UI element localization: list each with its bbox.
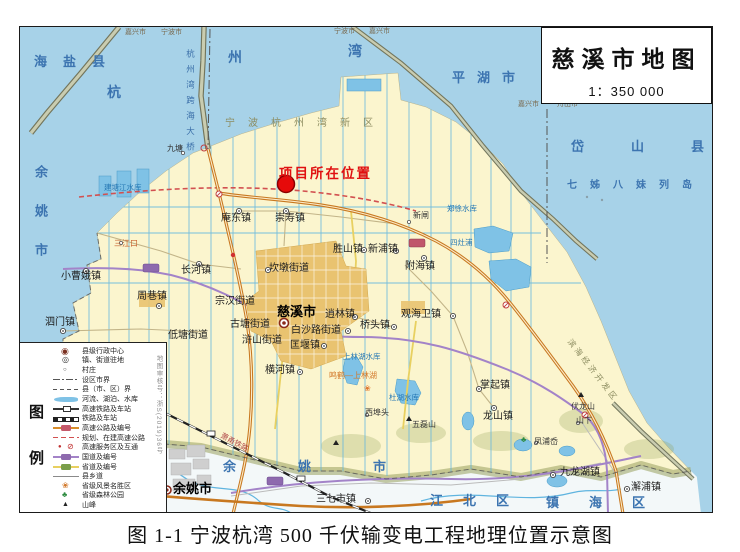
map-label: 岱山县 (571, 140, 713, 153)
map-label: 鸣鹤—上林湖 (329, 372, 377, 380)
legend-row: 镇、街道驻地 (52, 356, 144, 366)
legend-row: 省级风景名胜区 (52, 481, 144, 491)
legend-label: 国道及编号 (82, 452, 117, 462)
map-label: 嘉兴市 (125, 29, 146, 36)
map-label: 余姚市 (34, 165, 47, 282)
map-label: 匡堰镇 (290, 341, 320, 351)
expwy-legend-icon (52, 423, 80, 433)
map-label: 小曹娥镇 (61, 272, 101, 282)
map-label: 澥浦镇 (631, 483, 661, 493)
map-label: 江北区 (430, 494, 529, 507)
legend-label: 高速服务区及互通 (82, 442, 138, 452)
map-label: 三七市镇 (316, 495, 356, 505)
map-label: 嘉兴市 (518, 101, 539, 108)
map-label: 浒山街道 (242, 336, 282, 346)
town-legend-icon (52, 355, 80, 365)
map-label: 宁波市 (161, 29, 182, 36)
legend-label: 省级风景名胜区 (82, 481, 131, 491)
map-label: 杭 (107, 85, 121, 99)
legend-label: 省道及编号 (82, 462, 117, 472)
map-label: 西埠头 (365, 409, 389, 417)
river-legend-icon (52, 394, 80, 404)
map-label: 宁波市 (334, 28, 355, 35)
map-label: 湾 (348, 44, 362, 58)
map-label: 建塘江水库 (104, 184, 142, 192)
map-label: 七姊八妹列岛 (567, 181, 705, 191)
map-label: 山下 (576, 417, 592, 425)
legend-row: 高速公路及编号 (52, 423, 144, 433)
legend-row: 山峰 (52, 500, 144, 510)
legend-items: 县级行政中心镇、街道驻地村庄设区市界县（市、区）界河流、湖泊、水库高速铁路及车站… (52, 346, 144, 510)
map-title: 慈溪市地图 (542, 40, 711, 74)
map-label: 逍林镇 (325, 310, 355, 320)
map-label: 海盐县 (34, 55, 121, 68)
legend-label: 镇、街道驻地 (82, 355, 124, 365)
legend-row: 高速服务区及互通 (52, 442, 144, 452)
legend-row: 省级森林公园 (52, 491, 144, 501)
planned-legend-icon (52, 433, 80, 443)
map-label: 宗汉街道 (215, 297, 255, 307)
map-title-box: 慈溪市地图 1：350 000 (541, 27, 712, 104)
map-label: 古塘街道 (230, 320, 270, 330)
map-label: 杜湖水库 (389, 394, 419, 402)
scenic-legend-icon (52, 481, 80, 491)
map-label: 余姚市 (173, 482, 212, 495)
cityb-legend-icon (52, 375, 80, 385)
legend-label: 村庄 (82, 365, 96, 375)
service-legend-icon (52, 442, 80, 452)
legend-label: 高速公路及编号 (82, 423, 131, 433)
map-label: 宁波杭州湾新区 (225, 119, 386, 129)
map-label: 平湖市 (452, 71, 527, 84)
legend-row: 村庄 (52, 365, 144, 375)
map-label: 滨海经济开发区 (566, 338, 620, 404)
map-label: 崇寿镇 (275, 214, 305, 224)
map-label: 慈溪市 (277, 305, 316, 318)
map-label: 低塘街道 (168, 331, 208, 341)
map-label: 新浦镇 (368, 245, 398, 255)
map-label: 附海镇 (405, 262, 435, 272)
hsr-legend-icon (52, 404, 80, 414)
map-label: 五磊山 (412, 421, 436, 429)
map-label: 萧甬铁路 (219, 432, 249, 453)
map-scale: 1：350 000 (542, 81, 711, 100)
legend-row: 河流、湖泊、水库 (52, 394, 144, 404)
map-label: 州 (228, 50, 242, 64)
legend-row: 县级行政中心 (52, 346, 144, 356)
figure-caption: 图 1-1 宁波杭湾 500 千伏输变电工程地理位置示意图 (0, 519, 740, 548)
legend-label: 高速铁路及车站 (82, 404, 131, 414)
legend-label: 省级森林公园 (82, 490, 124, 500)
legend-row: 高速铁路及车站 (52, 404, 144, 414)
map-label: 胜山镇 (333, 245, 363, 255)
map-frame: ❀ ♣ 海盐县杭州湾平湖市岱山县七姊八妹列岛余姚市余姚市江北区镇海区嘉兴市宁波市… (19, 26, 713, 513)
project-location-label: 项目所在位置 (279, 162, 372, 182)
map-label: 长河镇 (181, 266, 211, 276)
forest-legend-icon (52, 490, 80, 500)
village-legend-icon (52, 365, 80, 375)
legend-row: 省道及编号 (52, 462, 144, 472)
countyb-legend-icon (52, 384, 80, 394)
legend-row: 县乡道 (52, 471, 144, 481)
map-label: 伏龙山 (571, 403, 595, 411)
legend-row: 规划、在建高速公路 (52, 433, 144, 443)
map-label: 庵东镇 (221, 214, 251, 224)
peak-legend-icon (52, 500, 80, 510)
map-label: 坎墩街道 (269, 264, 309, 274)
legend-label: 山峰 (82, 500, 96, 510)
map-label: 镇海区 (546, 496, 675, 509)
map-label: 周巷镇 (137, 292, 167, 302)
legend-row: 设区市界 (52, 375, 144, 385)
legend-row: 国道及编号 (52, 452, 144, 462)
rail-legend-icon (52, 413, 80, 423)
map-label: 凤浦岙 (534, 438, 558, 446)
map-label: 泗门镇 (45, 318, 75, 328)
map-label: 白沙路街道 (291, 326, 341, 336)
map-label: 龙山镇 (483, 412, 513, 422)
admin-legend-icon (52, 346, 80, 356)
map-review-number: 地图审核号：浙S(2019)36号 (153, 355, 163, 454)
map-label: 郑徐水库 (447, 205, 477, 213)
map-label: 四灶浦 (450, 239, 473, 247)
legend-label: 规划、在建高速公路 (82, 433, 145, 443)
map-label: 九塘 (167, 145, 183, 153)
map-label: 桥头镇 (360, 321, 390, 331)
page: ❀ ♣ 海盐县杭州湾平湖市岱山县七姊八妹列岛余姚市余姚市江北区镇海区嘉兴市宁波市… (0, 0, 740, 552)
map-label: 九龙湖镇 (560, 468, 600, 478)
legend-panel: 图 例 县级行政中心镇、街道驻地村庄设区市界县（市、区）界河流、湖泊、水库高速铁… (20, 342, 167, 513)
legend-label: 河流、湖泊、水库 (82, 394, 138, 404)
map-label: 新闸 (413, 212, 429, 220)
legend-char-tu: 图 (29, 401, 44, 422)
legend-label: 县级行政中心 (82, 346, 124, 356)
legend-char-li: 例 (29, 447, 44, 468)
map-label: 上林湖水库 (343, 353, 381, 361)
croad-legend-icon (52, 471, 80, 481)
map-label: 嘉兴市 (369, 28, 390, 35)
legend-row: 县（市、区）界 (52, 385, 144, 395)
map-label: 杭州湾跨海大桥 (186, 49, 195, 158)
legend-row: 铁路及车站 (52, 413, 144, 423)
legend-label: 设区市界 (82, 375, 110, 385)
map-label: 横河镇 (265, 366, 295, 376)
map-label: 三江口 (114, 240, 138, 248)
provincial-legend-icon (52, 462, 80, 472)
map-label: 掌起镇 (480, 381, 510, 391)
national-legend-icon (52, 452, 80, 462)
map-label: 余姚市 (223, 460, 448, 473)
map-label: 观海卫镇 (401, 310, 441, 320)
legend-label: 铁路及车站 (82, 413, 117, 423)
legend-label: 县乡道 (82, 471, 103, 481)
legend-label: 县（市、区）界 (82, 384, 131, 394)
